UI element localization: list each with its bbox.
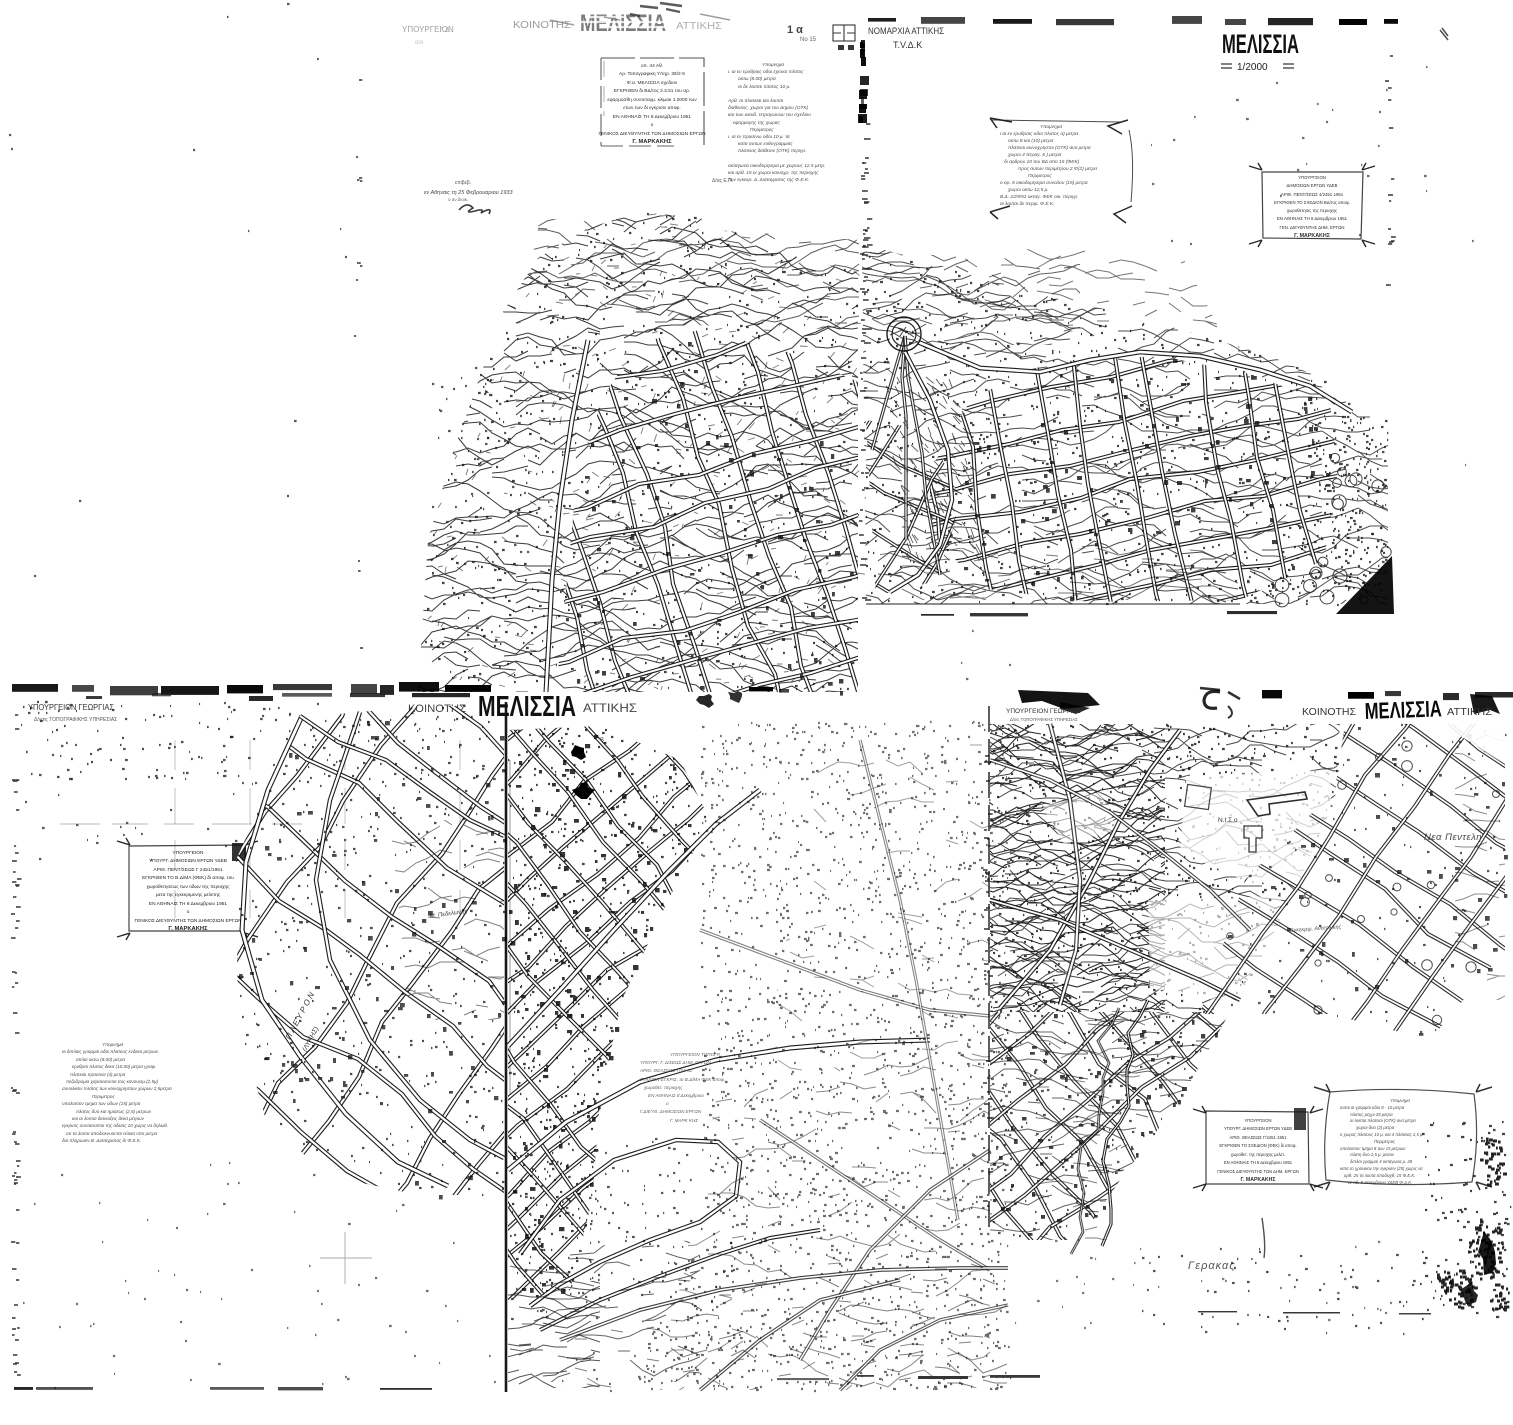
svg-text:ΕΓΚΡΙΘΕΝ ΤΟ Β.Δ/ΜΑ (ΦΕΚ) δι απ: ΕΓΚΡΙΘΕΝ ΤΟ Β.Δ/ΜΑ (ΦΕΚ) δι αποφ. του	[142, 875, 234, 881]
svg-text:ΥΠΟΥΡΓ. ΔΗΜΟΣΙΩΝ ΕΡΓΩΝ ΥΔΕΒ: ΥΠΟΥΡΓ. ΔΗΜΟΣΙΩΝ ΕΡΓΩΝ ΥΔΕΒ	[1224, 1126, 1292, 1131]
svg-text:Γ. ΜΑΡΚΑΚΗΣ: Γ. ΜΑΡΚΑΚΗΣ	[168, 926, 208, 932]
svg-text:ΥΠΟΥΡΓ. ΔΗΜΟΣΙΩΝ ΕΡΓΩΝ ΥΔΕΒ: ΥΠΟΥΡΓ. ΔΗΜΟΣΙΩΝ ΕΡΓΩΝ ΥΔΕΒ	[149, 858, 227, 864]
svg-text:χωροι οκτω 12,5 μ.: χωροι οκτω 12,5 μ.	[1007, 187, 1049, 193]
svg-text:απλαι οκτω (8.00) μετρα: απλαι οκτω (8.00) μετρα	[76, 1057, 125, 1062]
svg-text:Υπομνημα: Υπομνημα	[1390, 1098, 1410, 1103]
svg-text:ι. αι εν πρασινω οδοι 10 μ. τα: ι. αι εν πρασινω οδοι 10 μ. τα	[728, 134, 790, 140]
svg-text:Υπομνημα: Υπομνημα	[762, 62, 784, 68]
svg-text:Περιμετρος: Περιμετρος	[1374, 1139, 1396, 1144]
svg-text:οτι τα λοιπα αποδεικνυονται τε: οτι τα λοιπα αποδεικνυονται τελικα υπο μ…	[66, 1131, 157, 1136]
svg-text:ΥΠΟΥΡΓ. Γ. Δ/ΣΕΩΣ ΔΗΜ. ΕΡΓΩΝ: ΥΠΟΥΡΓ. Γ. Δ/ΣΕΩΣ ΔΗΜ. ΕΡΓΩΝ	[640, 1060, 711, 1065]
svg-text:χωροθετ. περιοχης: χωροθετ. περιοχης	[643, 1085, 683, 1090]
svg-text:ΑΡΙΘ. ΠΕΝΤ/ΣΕΩΣ Γ 2451/1951: ΑΡΙΘ. ΠΕΝΤ/ΣΕΩΣ Γ 2451/1951	[153, 867, 223, 873]
svg-text:Νεα Πεντελη: Νεα Πεντελη	[1424, 832, 1482, 843]
svg-text:ΝΟΜΑΡΧΙΑ ΑΤΤΙΚΗΣ: ΝΟΜΑΡΧΙΑ ΑΤΤΙΚΗΣ	[868, 26, 944, 37]
svg-text:ΥΠΟΥΡΓΕΙΟΝ ΓΕΩΡΓΙΑΣ: ΥΠΟΥΡΓΕΙΟΝ ΓΕΩΡΓΙΑΣ	[1006, 708, 1081, 715]
svg-text:Γ. ΜΑΡΚΑΚΗΣ: Γ. ΜΑΡΚΑΚΗΣ	[632, 139, 672, 145]
svg-text:δια πληρωσιν Β. Διαταγματος: δια πληρωσιν Β. Διαταγματος δι Φ.Ε.Κ.	[62, 1138, 141, 1143]
svg-text:Αρ. Τοπογραφικη Υπηρ. 36/2·5: Αρ. Τοπογραφικη Υπηρ. 36/2·5	[619, 71, 685, 77]
svg-text:Τ.V.Δ.Κ: Τ.V.Δ.Κ	[893, 40, 922, 50]
svg-text:αρθ. 25 τα λοιπα αποδειχθ. 15: αρθ. 25 τα λοιπα αποδειχθ. 15 Φ.Ε.Κ.	[1344, 1173, 1416, 1178]
svg-text:πλατειαι πρασιναι (4) μετρα: πλατειαι πρασιναι (4) μετρα	[70, 1072, 126, 1077]
svg-text:Περιμετρος: Περιμετρος	[92, 1094, 115, 1099]
svg-text:ΕΝ ΑΘΗΝΑΙΣ ΤΗ 8 Δεκεμβριου 195: ΕΝ ΑΘΗΝΑΙΣ ΤΗ 8 Δεκεμβριου 1951	[149, 901, 228, 907]
svg-text:Β.Δ. 22/9/51 οκταγ. ΦΕΚ οικ.: Β.Δ. 22/9/51 οκταγ. ΦΕΚ οικ. περιγρ.	[1000, 194, 1079, 200]
svg-text:κατα το χρονικον την εγκρισιν: κατα το χρονικον την εγκρισιν (25) χωρις…	[1340, 1166, 1423, 1171]
svg-text:επιβεβ.: επιβεβ.	[455, 180, 471, 186]
svg-text:πλατειαι κοινοχρηστοι (ΟΤΚ) αν: πλατειαι κοινοχρηστοι (ΟΤΚ) ανα μετρα	[1008, 145, 1091, 151]
svg-text:Γ. ΜΑΡΚ ΚΗΣ: Γ. ΜΑΡΚ ΚΗΣ	[670, 1118, 698, 1123]
svg-text:Γερακας: Γερακας	[1188, 1260, 1236, 1272]
svg-text:πλατειας διαθεσιν (ΟΤΚ) περιγρ: πλατειας διαθεσιν (ΟΤΚ) περιγρ.	[738, 148, 806, 154]
svg-text:αι διπλαις γραμμαι οδοι πλατου: αι διπλαις γραμμαι οδοι πλατους ενδεκα μ…	[62, 1049, 159, 1054]
svg-text:ι. αι εν ερυθραις οδοι εχουσι: ι. αι εν ερυθραις οδοι εχουσι πλατος	[728, 69, 804, 75]
svg-text:υπολοιπον τμημα των οδων (15): υπολοιπον τμημα των οδων (15) μετρα	[62, 1101, 141, 1106]
svg-text:ΑΤΤΙΚΗΣ: ΑΤΤΙΚΗΣ	[583, 701, 637, 715]
svg-text:χωροθετησις της περιοχης: χωροθετησις της περιοχης	[1287, 208, 1337, 213]
svg-text:ετων των δι εγκρισιν αποφ.: ετων των δι εγκρισιν αποφ.	[623, 105, 680, 111]
svg-text:Νο 15: Νο 15	[800, 37, 817, 43]
svg-text:ΓΕΝΙΚΟΣ ΔΙΕΥΘΥΝΤΗΣ ΤΩΝ ΔΗΜ. ΕΡ: ΓΕΝΙΚΟΣ ΔΙΕΥΘΥΝΤΗΣ ΤΩΝ ΔΗΜ. ΕΡΓΩΝ	[1217, 1169, 1299, 1174]
svg-text:Φ.α. ΜΕΛΙΣΣΙΑ σχεδιον: Φ.α. ΜΕΛΙΣΣΙΑ σχεδιον	[627, 80, 678, 86]
svg-text:προς αυτων περιμετρου 2 Φ(2) μ: προς αυτων περιμετρου 2 Φ(2) μετρα	[1018, 166, 1097, 172]
svg-text:διπλαι γραμμαι 4 οκταγωνα μ. 2: διπλαι γραμμαι 4 οκταγωνα μ. 28	[1350, 1159, 1413, 1164]
svg-text:ΥΠΟΥΡΓΕΙΟΝ: ΥΠΟΥΡΓΕΙΟΝ	[1244, 1118, 1271, 1123]
svg-text:Γ.ΔΙΕΥΘ. ΔΗΜΟΣΙΩΝ ΕΡΓΩΝ: Γ.ΔΙΕΥΘ. ΔΗΜΟΣΙΩΝ ΕΡΓΩΝ	[640, 1109, 702, 1114]
svg-text:ΑΡΙΘ. ΘΕΑΣΕΩΣ Γ/24·51: ΑΡΙΘ. ΘΕΑΣΕΩΣ Γ/24·51	[639, 1068, 693, 1073]
svg-text:ο χωρος πλατους 10 μ. και 4 π: ο χωρος πλατους 10 μ. και 4 πλατειας 2,5…	[1340, 1132, 1424, 1137]
svg-text:χωροθετ. της περιοχης μελετ.: χωροθετ. της περιοχης μελετ.	[1231, 1152, 1285, 1157]
svg-text:πλατος μεχρι 28 μετρα: πλατος μεχρι 28 μετρα	[1350, 1112, 1393, 1117]
svg-text:εν Αθηναις τη 25 Φεβρουαριου: εν Αθηναις τη 25 Φεβρουαριου 1933	[424, 190, 513, 196]
svg-text:υπολοιπον τμημα 8 των 15 μετρω: υπολοιπον τμημα 8 των 15 μετρων	[1340, 1146, 1406, 1151]
svg-text:χωροι 4 τετραγ. 6 ) μετρα: χωροι 4 τετραγ. 6 ) μετρα	[1007, 152, 1062, 158]
svg-text:Δ/νσις ΤΟΠΟΓΡΑΦΙΚΗΣ ΥΠΗΡΕΣΙΑΣ: Δ/νσις ΤΟΠΟΓΡΑΦΙΚΗΣ ΥΠΗΡΕΣΙΑΣ	[34, 717, 117, 723]
svg-text:πλατη δυο 2,5 μ. μεσον: πλατη δυο 2,5 μ. μεσον	[1350, 1152, 1395, 1157]
svg-text:ΕΓΚΡΙΘΕΝ ΤΟ ΣΧΕΔΙΟΝ (ΦΕΚ) δι α: ΕΓΚΡΙΘΕΝ ΤΟ ΣΧΕΔΙΟΝ (ΦΕΚ) δι αποφ.	[1219, 1143, 1296, 1148]
svg-text:α/δ: α/δ	[415, 40, 424, 46]
svg-text:1 α: 1 α	[787, 24, 803, 36]
svg-text:ΓΕΝΙΚΟΣ ΔΙΕΥΘΥΝΤΗΣ ΤΩΝ ΔΗΜΟΣΙΩ: ΓΕΝΙΚΟΣ ΔΙΕΥΘΥΝΤΗΣ ΤΩΝ ΔΗΜΟΣΙΩΝ ΕΡΓΩΝ	[598, 131, 706, 137]
svg-text:χωροθετησεως των οδων της περι: χωροθετησεως των οδων της περιοχης	[147, 884, 231, 890]
svg-text:εγκρισις συντασσεται της αδεια: εγκρισις συντασσεται της αδειας 10 χωρις…	[62, 1123, 168, 1128]
svg-text:εφαρμοσθη συντεταγμ. κλιμακ 1:: εφαρμοσθη συντεταγμ. κλιμακ 1:2000 των	[607, 97, 697, 103]
svg-text:ΥΠΟΥΡΓΕΙΟΝ ΓΕΩΡΓΙΑΣ: ΥΠΟΥΡΓΕΙΟΝ ΓΕΩΡΓΙΑΣ	[28, 702, 114, 712]
svg-text:ο: ο	[666, 1101, 669, 1106]
svg-text:οκτω 8 και (10) μετρα: οκτω 8 και (10) μετρα	[1008, 138, 1053, 144]
svg-text:χωροι δυο (2) μετρα: χωροι δυο (2) μετρα	[1355, 1125, 1395, 1130]
svg-text:εν Αθ. 8 Δεκεμβριου ΥΔΕΒ Φ.: εν Αθ. 8 Δεκεμβριου ΥΔΕΒ Φ.Δ.Κ.	[1348, 1180, 1412, 1185]
svg-text:ΥΠΟΥΡΓΕΙΟΝ: ΥΠΟΥΡΓΕΙΟΝ	[172, 850, 204, 856]
svg-text:Δ/σις ΤΟΠΟΓΡΑΦΙΚΗΣ ΥΠΗΡΕΣΙΑΣ: Δ/σις ΤΟΠΟΓΡΑΦΙΚΗΣ ΥΠΗΡΕΣΙΑΣ	[1010, 717, 1078, 722]
svg-text:ι αι εν ερυθραις οδοι πλατος: ι αι εν ερυθραις οδοι πλατος α) μετρα	[1000, 131, 1078, 137]
svg-text:ΓΕΝ. ΔΙΕΥΘΥΝΤΗΣ ΔΗΜ. ΕΡΓΩΝ: ΓΕΝ. ΔΙΕΥΘΥΝΤΗΣ ΔΗΜ. ΕΡΓΩΝ	[1280, 225, 1345, 230]
svg-text:ΕΝ ΑΘΗΝΑΙΣ 8 Δεκεμβριου: ΕΝ ΑΘΗΝΑΙΣ 8 Δεκεμβριου	[648, 1093, 704, 1098]
svg-text:1/2000: 1/2000	[1237, 62, 1268, 73]
svg-text:συνολικον πλατος των κοινοχρησ: συνολικον πλατος των κοινοχρηστων χωρων …	[62, 1086, 172, 1091]
svg-text:πλατος δυο και ημισεως (2,5) μ: πλατος δυο και ημισεως (2,5) μετρων	[76, 1109, 152, 1114]
svg-text:εφαρμογης της χωρας: εφαρμογης της χωρας	[733, 120, 781, 126]
svg-text:οκταγωνα οικοδομησιμα με χωρου: οκταγωνα οικοδομησιμα με χωρους 12.5 μετ…	[728, 163, 826, 169]
svg-text:ΑΤΤΙΚΗΣ: ΑΤΤΙΚΗΣ	[676, 21, 722, 32]
svg-text:ΕΝ ΑΘΗΝΑΙΣ ΤΗ 8 Δεκεμβριου 19: ΕΝ ΑΘΗΝΑΙΣ ΤΗ 8 Δεκεμβριου 1951	[613, 114, 692, 120]
svg-text:Γ.Δ.: Γ.Δ.	[440, 27, 452, 34]
svg-text:ΕΝ ΑΘΗΝΑΙΣ ΤΗ 8 Δεκεμβριου 195: ΕΝ ΑΘΗΝΑΙΣ ΤΗ 8 Δεκεμβριου 1951	[1277, 216, 1348, 221]
svg-text:υπ. 44 Αθ.: υπ. 44 Αθ.	[641, 63, 663, 69]
svg-text:ο αρ. 8 οικοδομησιμα συνολου: ο αρ. 8 οικοδομησιμα συνολου (15) μετρα	[1000, 180, 1088, 186]
svg-text:Γ. ΜΑΡΚΑΚΗΣ: Γ. ΜΑΡΚΑΚΗΣ	[1240, 1177, 1275, 1183]
svg-text:ΣΤΑΔΙΟΝ ΕΓΚΡΙΣ. το Β.Δ/ΜΑ ΦΕΚ: ΣΤΑΔΙΟΝ ΕΓΚΡΙΣ. το Β.Δ/ΜΑ ΦΕΚ αποφ.	[639, 1077, 725, 1082]
svg-text:οκτω (8.00) μετρα: οκτω (8.00) μετρα	[738, 76, 776, 82]
svg-text:ΕΓΚΡΙΘΕΝ ΤΟ ΣΧΕΔΙΟΝ ΒΔ/τος απο: ΕΓΚΡΙΘΕΝ ΤΟ ΣΧΕΔΙΟΝ ΒΔ/τος αποφ.	[1274, 200, 1350, 205]
svg-text:Δ/ας Ε.Π.: Δ/ας Ε.Π.	[712, 178, 733, 184]
svg-text:κατα αυτων ευθυγραμμιας: κατα αυτων ευθυγραμμιας	[738, 141, 793, 147]
svg-text:ΜΕΛΙΣΣΙΑ: ΜΕΛΙΣΣΙΑ	[1364, 695, 1442, 724]
svg-text:ΕΓΚΡΙΘΕΝ δι ΒΔ/τος 2.3.51 του: ΕΓΚΡΙΘΕΝ δι ΒΔ/τος 2.3.51 του αρ.	[614, 88, 690, 94]
svg-text:ΜΕΛΙΣΣΙΑ: ΜΕΛΙΣΣΙΑ	[1222, 29, 1299, 59]
svg-text:αι λοιπαι πλατειαι (ΟΤΚ) ανα μ: αι λοιπαι πλατειαι (ΟΤΚ) ανα μετρα	[1350, 1118, 1416, 1123]
svg-text:ο: ο	[651, 123, 654, 128]
svg-text:ΥΠΟΥΡΓΕΙΟΝ ΤΟΠΟΓΡ.: ΥΠΟΥΡΓΕΙΟΝ ΤΟΠΟΓΡ.	[670, 1052, 721, 1057]
svg-text:Περιμετρος: Περιμετρος	[1028, 173, 1052, 179]
svg-text:αι λοιπαι δε περιμ. Φ.Ε.Κ.: αι λοιπαι δε περιμ. Φ.Ε.Κ.	[1000, 201, 1054, 207]
svg-text:Αρθ. αι πλατειαι και λοιπαι: Αρθ. αι πλατειαι και λοιπαι	[727, 98, 783, 104]
svg-text:ΚΟΙΝΟΤΗΣ: ΚΟΙΝΟΤΗΣ	[1302, 706, 1356, 718]
svg-text:Ν.Ι.Σ.ο: Ν.Ι.Σ.ο	[1218, 817, 1238, 824]
svg-text:ΥΠΟΥΡΓΕΙΟΝ: ΥΠΟΥΡΓΕΙΟΝ	[1298, 175, 1326, 180]
svg-text:ΑΡΙΘ. ΘΕΑΣΕΩΣ Γ/2451·1951: ΑΡΙΘ. ΘΕΑΣΕΩΣ Γ/2451·1951	[1230, 1135, 1288, 1140]
svg-text:Υπομνημα: Υπομνημα	[1040, 124, 1062, 130]
svg-text:μετα της εγκεκριμενης μελετης: μετα της εγκεκριμενης μελετης	[156, 892, 221, 898]
svg-text:και των οικοδ. τετραγωνων του: και των οικοδ. τετραγωνων του σχεδιου	[728, 112, 811, 118]
svg-text:ΜΕΛΙΣΣΙΑ: ΜΕΛΙΣΣΙΑ	[580, 10, 666, 37]
svg-text:ερυθραι πλατος δεκα (10.00) με: ερυθραι πλατος δεκα (10.00) μετρα γραφ.	[72, 1064, 156, 1069]
svg-text:Γ. ΜΑΡΚΑΚΗΣ: Γ. ΜΑΡΚΑΚΗΣ	[1294, 233, 1331, 239]
svg-text:ΓΕΝΙΚΟΣ ΔΙΕΥΘΥΝΤΗΣ ΤΩΝ ΔΗΜΟΣΙΩ: ΓΕΝΙΚΟΣ ΔΙΕΥΘΥΝΤΗΣ ΤΩΝ ΔΗΜΟΣΙΩΝ ΕΡΓΩΝ	[134, 918, 242, 924]
svg-text:ΑΡΙΘ. ΠΕΝΤ/ΣΕΩΣ 4/2451·1951: ΑΡΙΘ. ΠΕΝΤ/ΣΕΩΣ 4/2451·1951	[1281, 192, 1344, 197]
svg-text:δι αρθρου 10 του ΒΔ απο 15: δι αρθρου 10 του ΒΔ απο 15 (ΦΕΚ)	[1004, 159, 1080, 165]
svg-text:ΑΤΤΙΚΗΣ: ΑΤΤΙΚΗΣ	[1447, 706, 1493, 718]
svg-text:ΔΗΜΟΣΙΩΝ ΕΡΓΩΝ ΥΔΕΒ: ΔΗΜΟΣΙΩΝ ΕΡΓΩΝ ΥΔΕΒ	[1287, 183, 1338, 188]
svg-text:αι δε λοιπαι πλατος 10 μ.: αι δε λοιπαι πλατος 10 μ.	[738, 84, 790, 90]
svg-text:Υπομνημα: Υπομνημα	[102, 1042, 124, 1047]
svg-text:των εγκεκρ. Δ. Διαταγματος τη: των εγκεκρ. Δ. Διαταγματος της Φ.Ε.Κ.	[728, 177, 809, 183]
svg-text:Περιμετρος: Περιμετρος	[750, 127, 774, 133]
svg-text:ΕΝ ΑΘΗΝΑΙΣ ΤΗ 8 Δεκεμβριου 195: ΕΝ ΑΘΗΝΑΙΣ ΤΗ 8 Δεκεμβριου 1951	[1224, 1160, 1293, 1165]
svg-text:ΜΕΛΙΣΣΙΑ: ΜΕΛΙΣΣΙΑ	[478, 691, 576, 723]
svg-text:ο: ο	[187, 910, 190, 915]
svg-text:ο αν.διοικ.: ο αν.διοικ.	[448, 197, 468, 202]
svg-text:ΚΟΙΝΟΤΗΣ: ΚΟΙΝΟΤΗΣ	[513, 20, 571, 31]
svg-text:διαθεσεις, χωροι για του Δημου: διαθεσεις, χωροι για του Δημου (ΟΤΚ)	[728, 105, 809, 111]
svg-text:και αρθ. 15 οι χωροι κοινοχρ.: και αρθ. 15 οι χωροι κοινοχρ. της περιοχ…	[728, 170, 819, 176]
svg-text:αυται αι γραμμαι οδοι 8 - 10 μ: αυται αι γραμμαι οδοι 8 - 10 μετρα	[1340, 1105, 1405, 1110]
